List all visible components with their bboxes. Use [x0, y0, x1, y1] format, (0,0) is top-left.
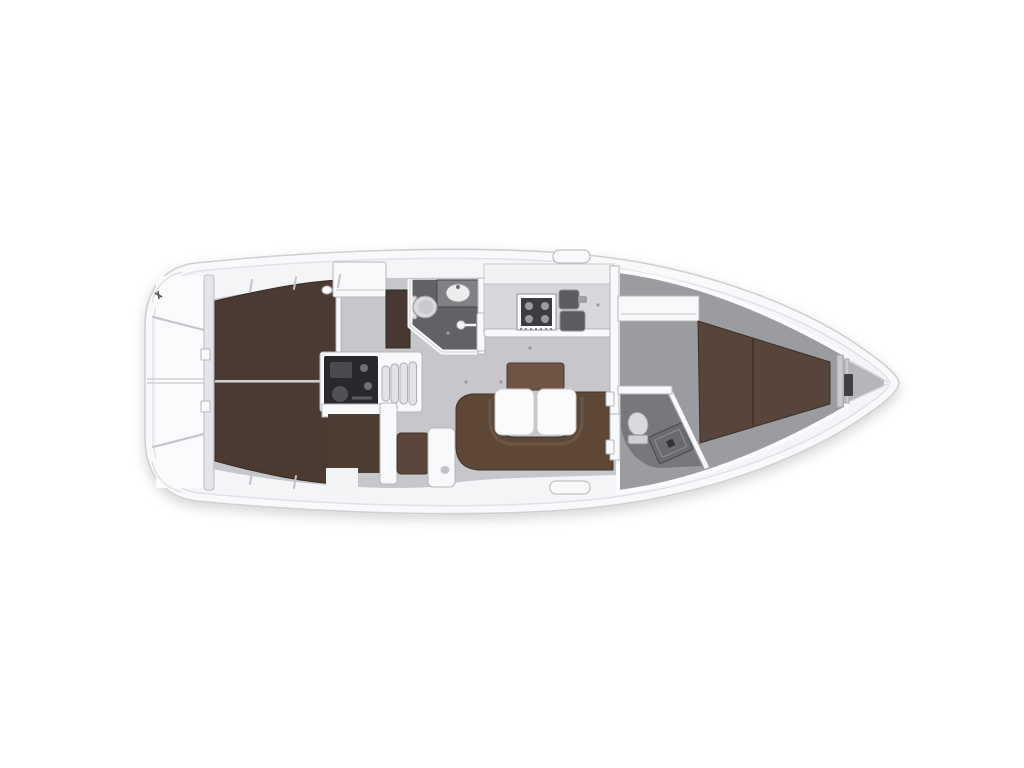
floor-dot-5 [596, 303, 599, 306]
galley [484, 264, 614, 337]
engine-part-a [330, 362, 352, 378]
windlass [844, 374, 853, 396]
boat-layout-plan [0, 0, 1024, 768]
forward-shelf [618, 296, 699, 321]
nav-seat [397, 433, 429, 474]
floor-dot-3 [446, 331, 449, 334]
heads-side-cabinet [386, 290, 410, 348]
aft-heads-faucet [456, 285, 460, 289]
nook-side-wall [380, 403, 397, 484]
aft-bulkhead-hinge-top [201, 349, 210, 360]
floor-dot-2 [499, 380, 502, 383]
floor-dot-4 [528, 346, 531, 349]
step-3 [400, 363, 408, 404]
salon-table-leaf-left [495, 389, 534, 435]
nav-cabinet [428, 428, 455, 487]
galley-lockers [484, 264, 614, 285]
floor-dot-7 [633, 370, 636, 373]
aft-berth-divider-line [215, 380, 337, 383]
nook-hull-trim [326, 468, 358, 490]
deck-cleat-bottom [550, 481, 590, 494]
engine-pulley [332, 386, 348, 402]
wardrobe-knob [322, 286, 332, 294]
bulkhead-hinge-top [606, 392, 614, 406]
step-4 [409, 362, 417, 405]
floor-dot-1 [464, 380, 467, 383]
stern-platform [156, 276, 206, 488]
nav-cabinet-knob [441, 466, 450, 474]
stove-burner-1 [525, 302, 533, 310]
step-2 [391, 364, 399, 403]
aft-bulkhead-hinge-bottom [201, 401, 210, 412]
wardrobe-locker [333, 262, 386, 297]
aft-shower-head [457, 321, 466, 330]
salon-table-leaf-right [537, 389, 576, 435]
galley-faucet [578, 296, 587, 303]
bulkhead-hinge-bottom [606, 440, 614, 454]
page [0, 0, 1024, 768]
stern-deck [147, 272, 214, 492]
stove-burner-3 [525, 315, 533, 323]
aft-toilet-seat [419, 300, 434, 314]
aft-cabin-access [328, 414, 381, 473]
deck-cleat-top [553, 250, 590, 263]
bow-bulkhead-a [837, 355, 843, 407]
forward-heads-top-wall [618, 386, 672, 394]
stove-burner-2 [541, 302, 549, 310]
floor-dot-6 [646, 340, 649, 343]
engine-cap-b [364, 382, 372, 390]
stove-burner-4 [541, 315, 549, 323]
sofa-back-cushion [507, 363, 564, 390]
engine-companionway [320, 352, 422, 412]
step-1 [382, 366, 390, 401]
aft-bulkhead [204, 275, 214, 490]
engine-cap-a [360, 364, 368, 372]
forward-toilet-tank [628, 435, 648, 444]
galley-sink-small [559, 290, 579, 309]
galley-sink-large [560, 311, 585, 331]
